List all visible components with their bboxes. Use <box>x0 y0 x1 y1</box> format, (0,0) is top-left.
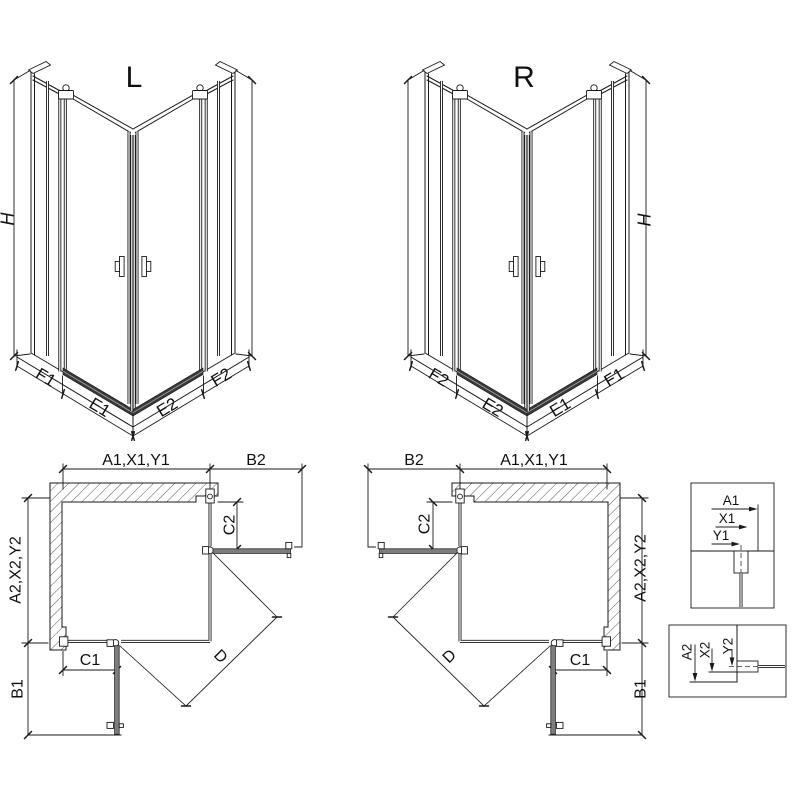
plan-dim-side-left: A2,X2,Y2 <box>8 536 25 604</box>
plan-dim-c1-right: C1 <box>570 652 591 669</box>
plan-dim-b1-left: B1 <box>10 679 27 699</box>
detail-box-top: A1 X1 Y1 <box>691 483 774 608</box>
detail-dim-a1: A1 <box>723 493 740 508</box>
dim-label-f1-right: F1 <box>601 364 628 391</box>
plan-dim-b2-right: B2 <box>404 452 424 469</box>
plan-view-left: A1,X1,Y1 B2 C2 A2,X2,Y2 C1 B1 D <box>8 452 306 739</box>
variant-title-left: L <box>126 61 143 94</box>
plan-dim-side-right: A2,X2,Y2 <box>633 534 650 602</box>
detail-dim-x1: X1 <box>719 511 736 526</box>
detail-dim-y2: Y2 <box>721 638 736 655</box>
dim-label-f1-left: F1 <box>32 364 59 391</box>
dim-label-height-right: H <box>634 213 654 227</box>
variant-title-right: R <box>513 61 535 94</box>
detail-dim-x2: X2 <box>698 642 713 659</box>
iso-view-right: R H F2 E2 E1 F1 <box>405 61 655 440</box>
plan-dim-b2-left: B2 <box>246 452 266 469</box>
plan-left-lineart <box>22 464 306 739</box>
iso-view-left: L H F1 E1 E2 F2 <box>0 61 256 440</box>
plan-dim-c2-left: C2 <box>222 515 239 536</box>
wall-section-left-plan <box>50 483 218 650</box>
plan-dim-c1-left: C1 <box>80 652 101 669</box>
dim-label-height-left: H <box>0 212 17 226</box>
plan-dim-top-left: A1,X1,Y1 <box>102 452 170 469</box>
detail-box-bottom: A2 X2 Y2 <box>669 625 786 697</box>
plan-view-right: A1,X1,Y1 B2 C2 A2,X2,Y2 C1 B1 D <box>365 452 650 739</box>
plan-dim-diagonal-right: D <box>440 647 460 667</box>
page: L H F1 E1 E2 F2 R H F2 E2 E1 F1 A1,X1,Y1… <box>0 0 800 800</box>
plan-dim-diagonal-left: D <box>210 647 230 667</box>
plan-dim-top-right: A1,X1,Y1 <box>500 452 568 469</box>
wall-section-right-plan <box>452 483 620 650</box>
shower-enclosure-technical-drawing: L H F1 E1 E2 F2 R H F2 E2 E1 F1 A1,X1,Y1… <box>0 0 800 800</box>
plan-dim-b1-right: B1 <box>633 679 650 699</box>
plan-dim-c2-right: C2 <box>417 514 434 535</box>
detail-dim-a2: A2 <box>680 644 695 661</box>
plan-right-lineart <box>365 464 649 739</box>
detail-dim-y1: Y1 <box>713 528 730 543</box>
